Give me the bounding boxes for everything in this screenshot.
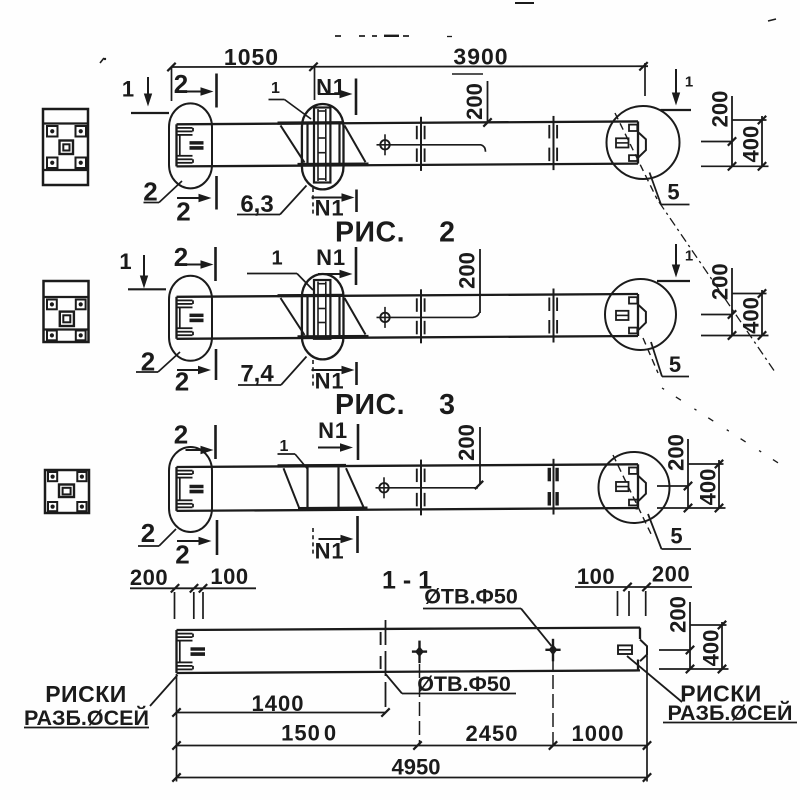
svg-text:0: 0 <box>324 720 336 745</box>
svg-text:200: 200 <box>454 424 479 461</box>
svg-text:1: 1 <box>685 247 693 264</box>
svg-text:РИС.: РИС. <box>335 389 405 421</box>
svg-text:200: 200 <box>652 561 690 586</box>
svg-text:100: 100 <box>577 564 615 589</box>
svg-text:200: 200 <box>707 263 732 300</box>
svg-text:N1: N1 <box>315 538 345 563</box>
svg-text:2: 2 <box>174 242 188 272</box>
svg-text:5: 5 <box>667 179 679 204</box>
svg-text:100: 100 <box>210 564 248 589</box>
svg-text:5: 5 <box>669 352 681 377</box>
svg-text:N1: N1 <box>316 245 346 270</box>
svg-text:200: 200 <box>663 434 688 471</box>
svg-text:2: 2 <box>439 217 455 249</box>
svg-text:2: 2 <box>176 197 190 227</box>
svg-text:200: 200 <box>454 252 479 289</box>
svg-text:400: 400 <box>695 469 720 506</box>
svg-text:2: 2 <box>141 518 155 548</box>
svg-text:7,4: 7,4 <box>240 361 274 388</box>
svg-text:2450: 2450 <box>466 721 519 746</box>
svg-text:N1: N1 <box>318 418 348 443</box>
svg-text:РАЗБ.ØСЕЙ: РАЗБ.ØСЕЙ <box>24 705 149 730</box>
svg-text:4950: 4950 <box>392 754 441 779</box>
svg-text:200: 200 <box>130 565 168 590</box>
svg-text:200: 200 <box>462 83 487 120</box>
svg-text:1000: 1000 <box>572 721 625 746</box>
svg-text:1: 1 <box>685 73 693 90</box>
svg-text:РИСКИ: РИСКИ <box>45 681 127 707</box>
svg-text:РИС.: РИС. <box>335 217 405 249</box>
svg-text:3900: 3900 <box>453 44 508 70</box>
svg-text:1: 1 <box>280 438 289 455</box>
svg-text:1: 1 <box>122 76 134 101</box>
svg-text:1: 1 <box>271 80 280 97</box>
svg-text:2: 2 <box>175 367 189 397</box>
svg-text:1: 1 <box>271 248 282 270</box>
svg-text:150: 150 <box>281 720 321 745</box>
svg-text:1400: 1400 <box>252 691 305 716</box>
svg-text:3: 3 <box>439 389 455 421</box>
svg-text:200: 200 <box>665 596 690 633</box>
svg-text:1: 1 <box>119 249 131 274</box>
svg-text:2: 2 <box>175 540 189 570</box>
svg-text:5: 5 <box>670 523 682 548</box>
svg-text:ØТВ.Ф50: ØТВ.Ф50 <box>424 585 518 609</box>
svg-text:2: 2 <box>174 420 188 450</box>
svg-text:РАЗБ.ØСЕЙ: РАЗБ.ØСЕЙ <box>668 700 793 725</box>
svg-text:ØТВ.Ф50: ØТВ.Ф50 <box>417 672 511 696</box>
svg-text:400: 400 <box>698 630 723 667</box>
svg-text:2: 2 <box>174 69 188 99</box>
svg-text:400: 400 <box>738 126 763 163</box>
svg-text:1050: 1050 <box>224 44 279 70</box>
svg-text:200: 200 <box>707 91 732 128</box>
svg-text:400: 400 <box>738 297 763 334</box>
